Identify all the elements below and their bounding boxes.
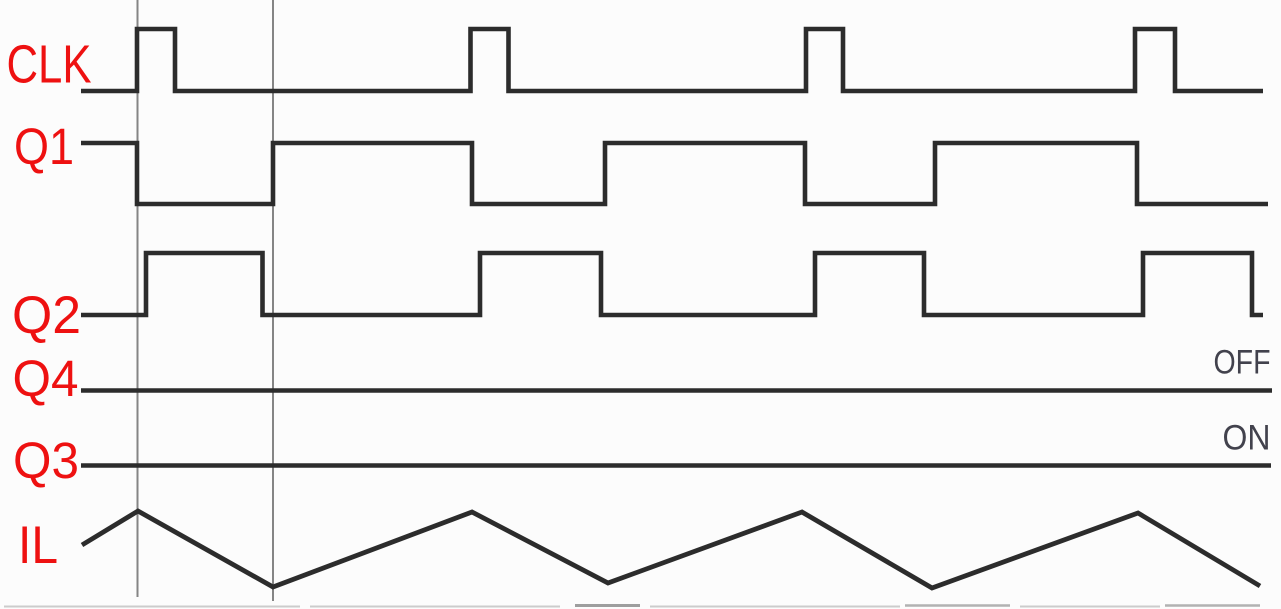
svg-text:IL: IL (18, 516, 58, 575)
svg-text:Q4: Q4 (13, 350, 79, 407)
svg-text:Q2: Q2 (12, 286, 81, 345)
svg-text:Q1: Q1 (14, 118, 74, 175)
svg-text:OFF: OFF (1214, 344, 1271, 382)
svg-text:ON: ON (1223, 419, 1271, 458)
svg-text:CLK: CLK (7, 35, 92, 95)
svg-text:Q3: Q3 (13, 432, 79, 489)
